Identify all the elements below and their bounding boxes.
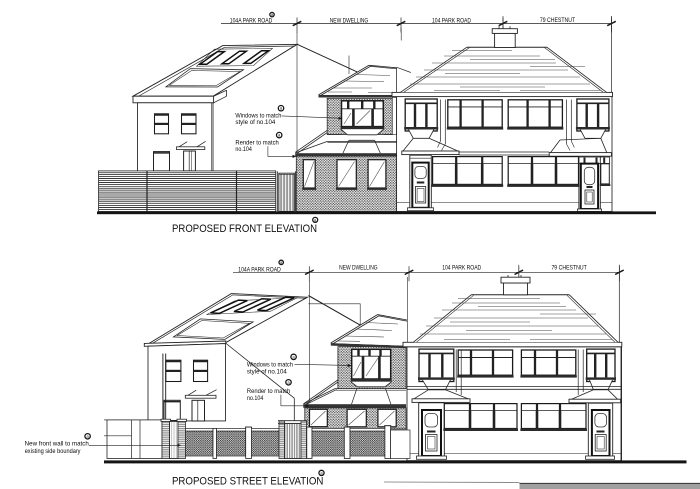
svg-text:PROPOSED FRONT ELEVATION: PROPOSED FRONT ELEVATION <box>172 223 317 235</box>
svg-text:79 CHESTNUT: 79 CHESTNUT <box>551 266 587 272</box>
svg-text:104A PARK ROAD: 104A PARK ROAD <box>238 267 281 273</box>
svg-text:104A PARK ROAD: 104A PARK ROAD <box>230 19 273 25</box>
svg-text:no.104: no.104 <box>247 395 264 402</box>
svg-text:style of no.104: style of no.104 <box>235 119 276 126</box>
svg-text:NEW DWELLING: NEW DWELLING <box>330 19 369 25</box>
svg-text:104 PARK ROAD: 104 PARK ROAD <box>442 266 482 272</box>
svg-text:no.104: no.104 <box>235 146 252 153</box>
svg-text:style of no.104: style of no.104 <box>247 368 288 375</box>
svg-text:New front wall to match: New front wall to match <box>25 441 89 448</box>
svg-text:79 CHESTNUT: 79 CHESTNUT <box>540 18 576 24</box>
svg-text:existing side boundary: existing side boundary <box>25 448 82 455</box>
svg-text:104 PARK ROAD: 104 PARK ROAD <box>432 19 472 25</box>
svg-text:PROPOSED STREET ELEVATION: PROPOSED STREET ELEVATION <box>172 475 324 487</box>
svg-text:NEW DWELLING: NEW DWELLING <box>339 266 378 272</box>
